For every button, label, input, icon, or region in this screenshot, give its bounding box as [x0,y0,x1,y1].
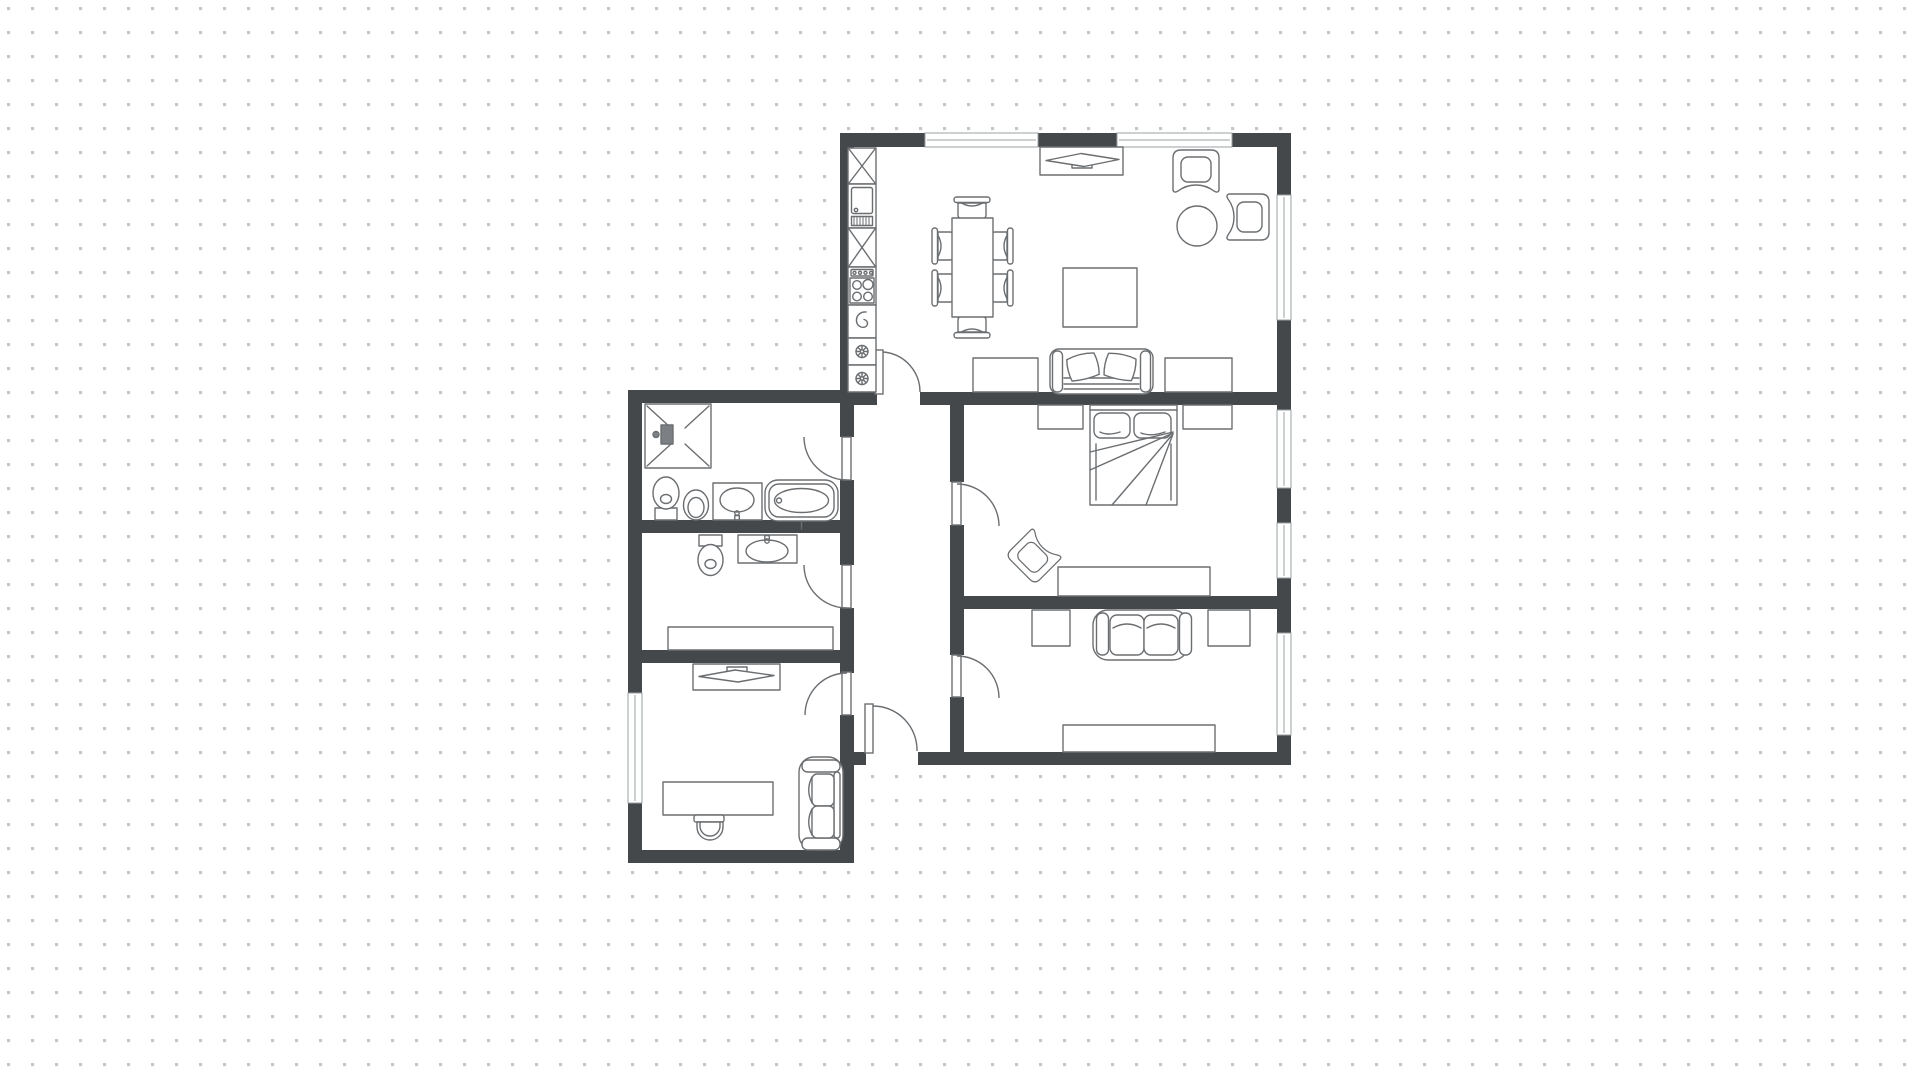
wall-segment[interactable] [918,752,1291,765]
wall-segment[interactable] [628,390,854,403]
dining-table[interactable] [952,218,993,317]
wall-segment[interactable] [840,752,868,765]
wall-segment[interactable] [628,650,854,663]
kitchen-sink-unit-icon[interactable] [848,305,876,338]
side-table[interactable] [1208,610,1250,646]
sofa-living[interactable] [1050,349,1153,394]
double-bed[interactable] [1090,405,1177,505]
stove-icon[interactable] [848,267,876,305]
wall-segment[interactable] [950,405,964,482]
floor-plan-canvas [0,0,1920,1078]
side-table[interactable] [1165,358,1232,392]
wall-segment[interactable] [628,850,854,863]
dresser[interactable] [1058,567,1210,596]
wall-segment[interactable] [950,697,964,752]
appliance-unit-icon[interactable] [848,365,876,392]
window-lounge-right[interactable] [1277,633,1291,735]
cabinet[interactable] [668,627,833,650]
window-living-top-1[interactable] [925,133,1038,147]
window-bedroom-right-2[interactable] [1277,523,1291,578]
nightstand[interactable] [1183,405,1232,429]
wall-segment[interactable] [840,608,854,673]
vanity-sink-icon[interactable] [713,483,762,520]
shower-icon[interactable] [645,404,711,468]
refrigerator-icon[interactable] [848,184,876,228]
desk[interactable] [663,782,773,815]
side-table[interactable] [973,358,1038,392]
kitchen-cabinet-icon[interactable] [848,228,876,267]
window-office-left[interactable] [628,693,642,803]
side-table[interactable] [1032,610,1070,646]
appliance-unit-icon[interactable] [848,338,876,365]
coffee-table[interactable] [1063,268,1137,327]
loveseat-lounge[interactable] [1093,610,1192,660]
window-living-right[interactable] [1277,195,1291,320]
wall-segment[interactable] [950,525,964,655]
wall-segment[interactable] [950,596,1291,609]
floor-right-block [840,133,1291,765]
wall-segment[interactable] [628,390,642,693]
toilet-icon[interactable] [653,477,679,520]
vanity-sink-icon[interactable] [738,535,797,563]
nightstand[interactable] [1038,405,1083,429]
window-bedroom-right-1[interactable] [1277,410,1291,488]
loveseat-office[interactable] [799,757,843,850]
kitchen-cabinet-icon[interactable] [848,148,876,184]
wall-segment[interactable] [628,520,854,533]
round-side-table[interactable] [1177,206,1217,246]
sideboard[interactable] [1063,725,1215,752]
window-living-top-2[interactable] [1117,133,1232,147]
bidet-icon[interactable] [684,490,709,520]
toilet-icon[interactable] [698,535,723,576]
